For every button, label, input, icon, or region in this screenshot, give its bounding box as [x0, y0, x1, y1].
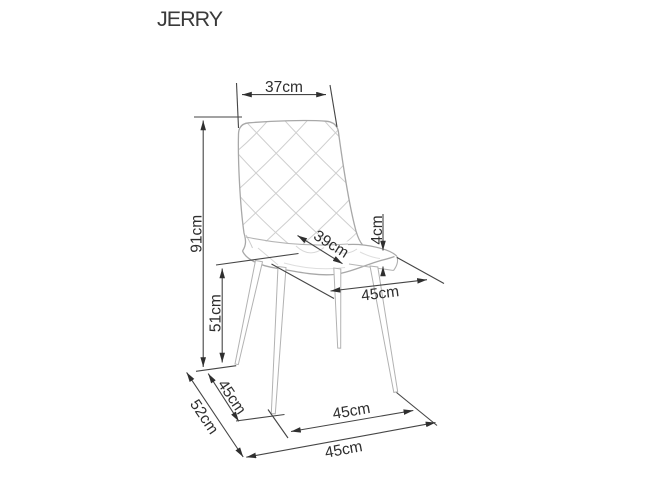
svg-text:45cm: 45cm — [331, 400, 371, 423]
svg-text:91cm: 91cm — [189, 215, 206, 253]
svg-text:JERRY: JERRY — [157, 7, 223, 31]
svg-text:37cm: 37cm — [265, 79, 303, 96]
svg-text:45cm: 45cm — [360, 283, 400, 304]
svg-text:45cm: 45cm — [214, 377, 249, 418]
svg-text:4cm: 4cm — [369, 215, 386, 244]
svg-text:51cm: 51cm — [208, 294, 225, 332]
